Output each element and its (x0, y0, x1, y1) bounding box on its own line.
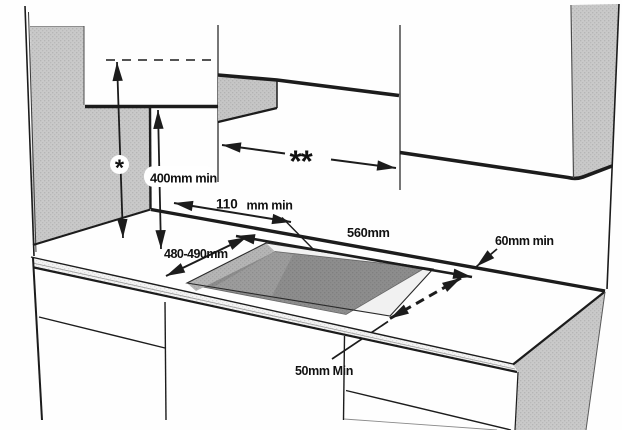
svg-text:400mm min: 400mm min (150, 171, 217, 186)
svg-text:480-490mm: 480-490mm (164, 247, 228, 261)
svg-text:*: * (115, 155, 125, 181)
svg-text:mm min: mm min (247, 199, 293, 213)
svg-text:560mm: 560mm (347, 225, 390, 240)
svg-text:60mm min: 60mm min (495, 234, 554, 248)
svg-text:**: ** (290, 144, 314, 179)
svg-text:110: 110 (216, 197, 238, 212)
